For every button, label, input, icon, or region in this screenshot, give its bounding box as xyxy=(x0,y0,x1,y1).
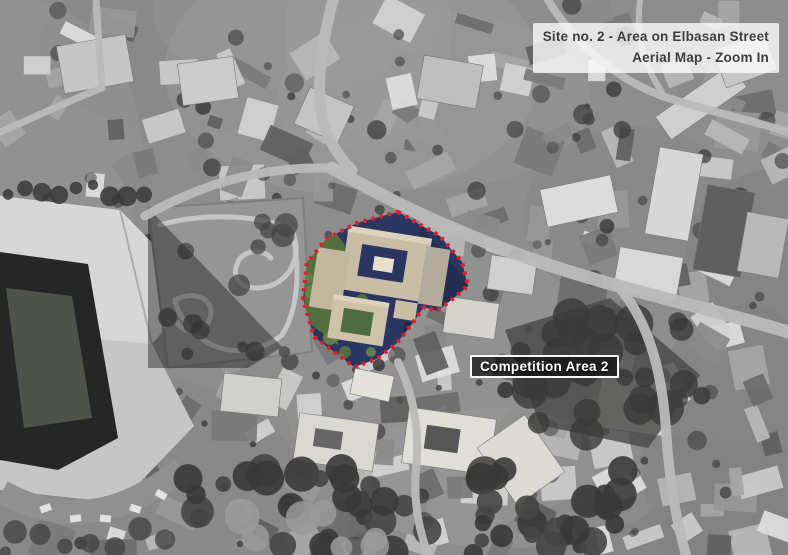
competition-area-label: Competition Area 2 xyxy=(470,355,619,378)
map-title-box: Site no. 2 - Area on Elbasan Street Aeri… xyxy=(533,23,779,73)
park-with-paths xyxy=(148,198,312,368)
competition-area-label-text: Competition Area 2 xyxy=(480,359,609,374)
satellite-map-canvas xyxy=(0,0,788,555)
aerial-map-page: Competition Area 2 Site no. 2 - Area on … xyxy=(0,0,788,555)
map-title-line2: Aerial Map - Zoom In xyxy=(543,48,769,69)
map-title-line1: Site no. 2 - Area on Elbasan Street xyxy=(543,27,769,48)
